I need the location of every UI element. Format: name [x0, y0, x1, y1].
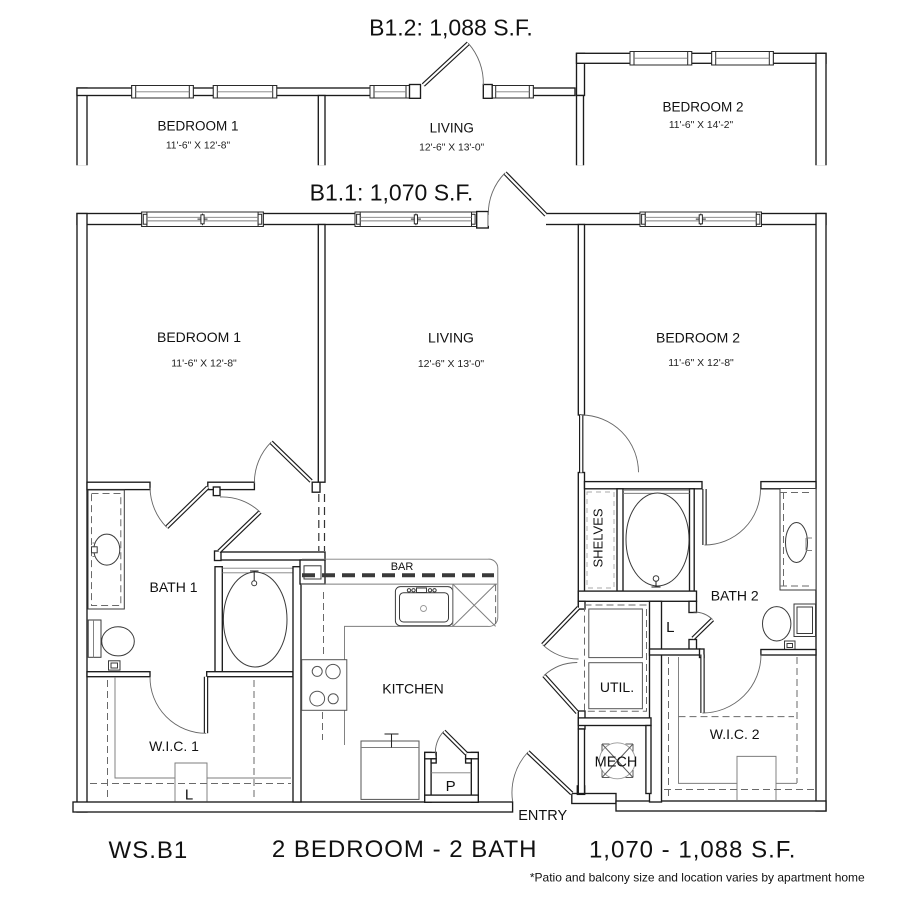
svg-text:W.I.C. 2: W.I.C. 2: [710, 726, 760, 742]
svg-text:BEDROOM 1: BEDROOM 1: [157, 119, 238, 134]
svg-text:12'-6" X 13'-0": 12'-6" X 13'-0": [419, 142, 484, 153]
svg-text:2 BEDROOM - 2 BATH: 2 BEDROOM - 2 BATH: [272, 836, 538, 863]
svg-text:MECH: MECH: [595, 755, 638, 771]
svg-text:B1.2: 1,088 S.F.: B1.2: 1,088 S.F.: [369, 14, 533, 40]
svg-text:WS.B1: WS.B1: [109, 837, 189, 864]
svg-text:12'-6" X 13'-0": 12'-6" X 13'-0": [418, 358, 485, 370]
svg-text:B1.1: 1,070 S.F.: B1.1: 1,070 S.F.: [310, 179, 474, 205]
svg-text:L: L: [666, 619, 674, 636]
svg-text:LIVING: LIVING: [428, 330, 474, 346]
svg-text:KITCHEN: KITCHEN: [382, 681, 443, 697]
svg-text:11'-6" X 12'-8": 11'-6" X 12'-8": [668, 357, 734, 369]
svg-text:P: P: [446, 778, 456, 795]
svg-text:SHELVES: SHELVES: [591, 508, 606, 567]
svg-text:UTIL.: UTIL.: [600, 679, 634, 695]
svg-text:L: L: [185, 787, 193, 804]
svg-text:ENTRY: ENTRY: [518, 808, 567, 824]
svg-text:11'-6" X 12'-8": 11'-6" X 12'-8": [171, 357, 237, 369]
svg-text:BEDROOM 1: BEDROOM 1: [157, 329, 241, 345]
svg-text:BATH 2: BATH 2: [711, 588, 759, 604]
svg-text:BATH 1: BATH 1: [150, 579, 198, 595]
svg-text:BEDROOM 2: BEDROOM 2: [656, 330, 740, 346]
svg-text:LIVING: LIVING: [430, 121, 474, 136]
svg-text:BAR: BAR: [391, 561, 414, 573]
svg-text:*Patio and balcony size and lo: *Patio and balcony size and location var…: [530, 870, 865, 884]
svg-text:11'-6" X 14'-2": 11'-6" X 14'-2": [669, 120, 734, 131]
svg-text:1,070 - 1,088 S.F.: 1,070 - 1,088 S.F.: [589, 836, 796, 863]
svg-text:11'-6" X 12'-8": 11'-6" X 12'-8": [166, 140, 231, 151]
svg-text:BEDROOM 2: BEDROOM 2: [662, 100, 743, 115]
svg-text:W.I.C. 1: W.I.C. 1: [149, 738, 199, 754]
